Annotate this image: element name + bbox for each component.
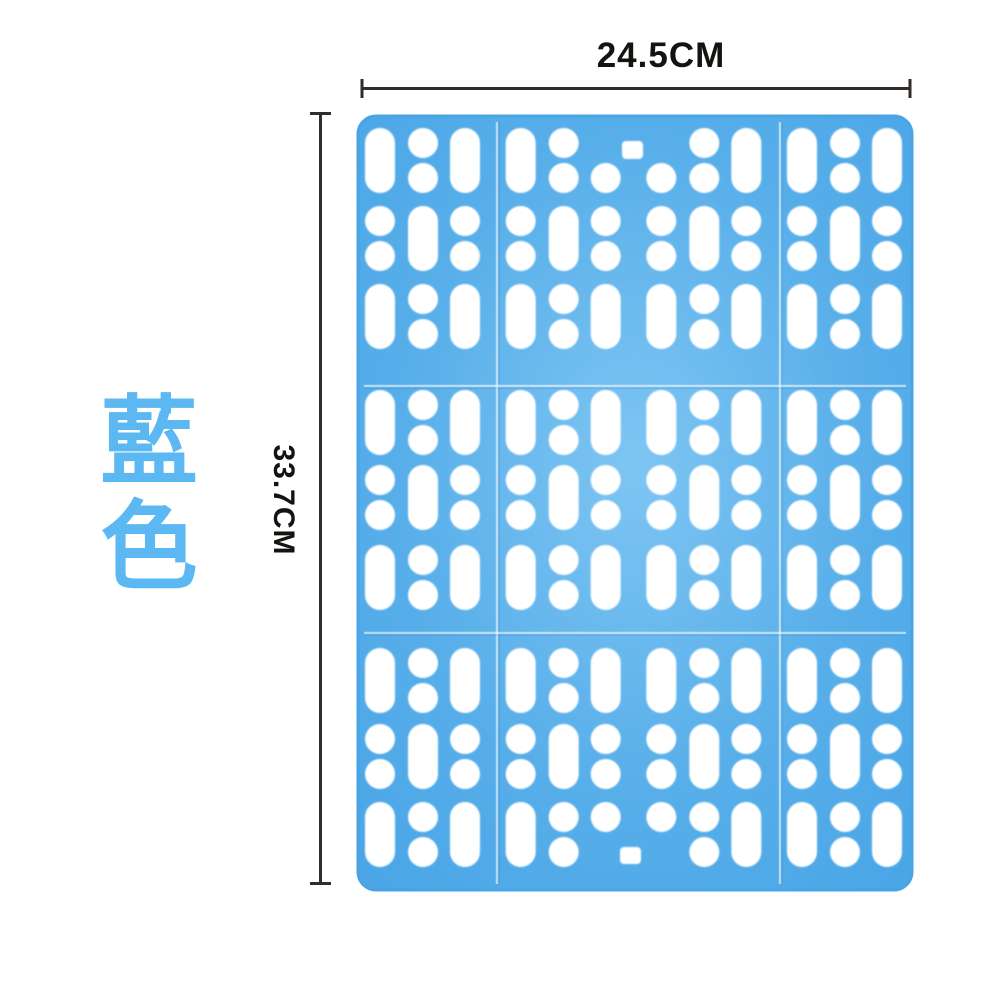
width-dimension-label: 24.5CM bbox=[597, 36, 726, 76]
height-dimension-line bbox=[310, 113, 331, 884]
product-image: 24.5CM 33.7CM 藍色 bbox=[0, 0, 1000, 1000]
height-dimension-label: 33.7CM bbox=[266, 444, 300, 555]
mat-body bbox=[358, 116, 912, 890]
color-name-label: 藍色 bbox=[92, 390, 189, 600]
width-dimension-line bbox=[362, 79, 910, 98]
